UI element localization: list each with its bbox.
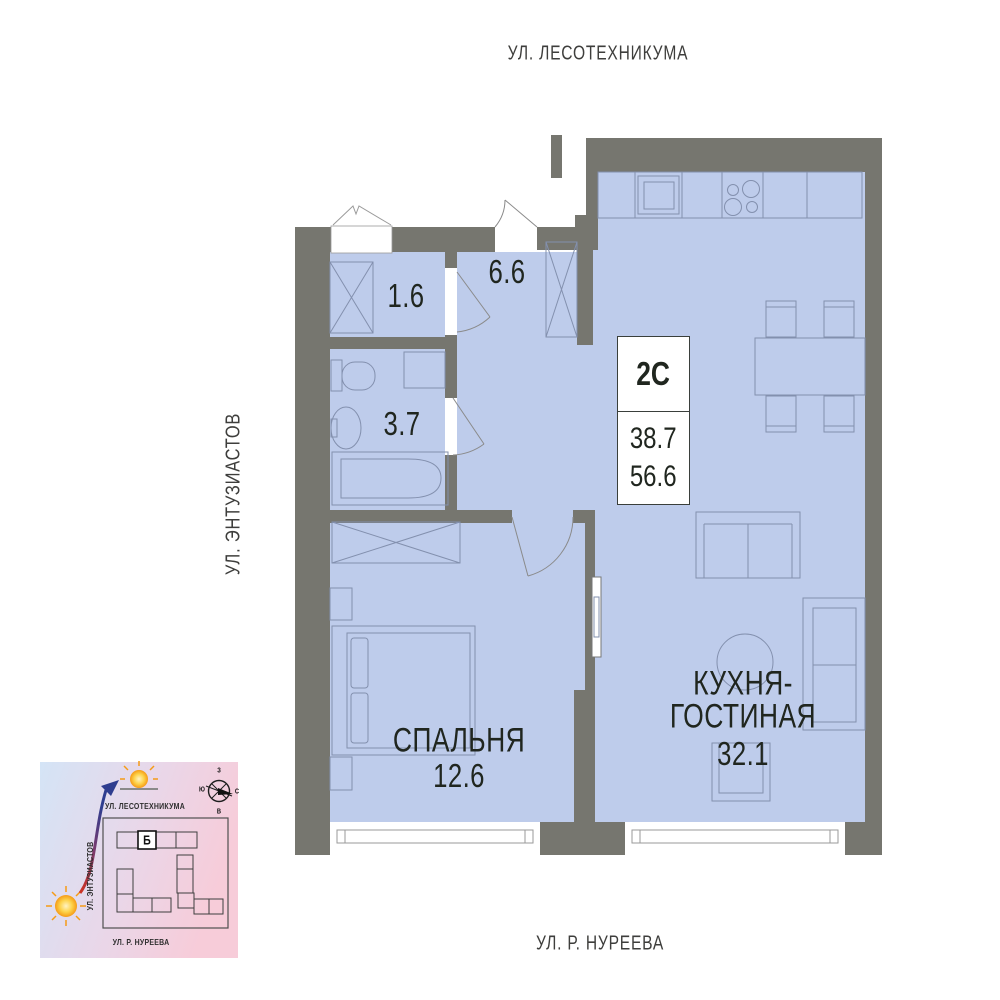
bedroom-name-label: СПАЛЬНЯ bbox=[393, 722, 525, 761]
chair-icon bbox=[766, 301, 796, 337]
street-label-bottom: УЛ. Р. НУРЕЕВА bbox=[536, 933, 664, 956]
tv-icon bbox=[592, 577, 601, 657]
chair-icon bbox=[766, 396, 796, 432]
entry-door bbox=[495, 200, 537, 227]
apartment-plan bbox=[295, 135, 882, 855]
bedroom-area-label: 12.6 bbox=[433, 757, 485, 795]
total-area-value: 56.6 bbox=[630, 460, 677, 494]
closet-area-label: 1.6 bbox=[388, 277, 425, 315]
kitchen-living-area-label: 32.1 bbox=[717, 735, 769, 773]
window-top bbox=[331, 206, 392, 253]
street-label-left: УЛ. ЭНТУЗИАСТОВ bbox=[223, 413, 246, 575]
bedroom-window bbox=[330, 822, 540, 855]
kitchen-living-name-line2: ГОСТИНАЯ bbox=[670, 698, 816, 737]
chair-icon bbox=[824, 301, 854, 337]
minimap-street-left: УЛ. ЭНТУЗИАСТОВ bbox=[85, 842, 95, 911]
compass-letter-right: С bbox=[235, 789, 239, 796]
hallway-area-label: 6.6 bbox=[489, 253, 526, 291]
living-window bbox=[625, 822, 845, 855]
floorplan-page: УЛ. ЛЕСОТЕХНИКУМА УЛ. ЭНТУЗИАСТОВ УЛ. Р.… bbox=[0, 0, 1000, 1000]
bathroom-area-label: 3.7 bbox=[384, 405, 421, 443]
minimap-street-bottom: УЛ. Р. НУРЕЕВА bbox=[113, 937, 170, 947]
street-label-top: УЛ. ЛЕСОТЕХНИКУМА bbox=[508, 43, 689, 66]
apartment-type-label: 2С bbox=[637, 355, 671, 393]
minimap-building-label: Б bbox=[143, 833, 151, 848]
floorplan-drawing bbox=[0, 0, 1000, 1000]
chair-icon bbox=[824, 396, 854, 432]
minimap-street-top: УЛ. ЛЕСОТЕХНИКУМА bbox=[105, 801, 185, 811]
compass-letter-left: Ю bbox=[199, 787, 205, 794]
location-minimap bbox=[40, 761, 238, 958]
compass-letter-bottom: В bbox=[217, 809, 221, 816]
apartment-info-box: 2С 38.7 56.6 bbox=[617, 336, 690, 505]
compass-letter-top: З bbox=[217, 768, 221, 775]
living-area-value: 38.7 bbox=[630, 422, 677, 456]
